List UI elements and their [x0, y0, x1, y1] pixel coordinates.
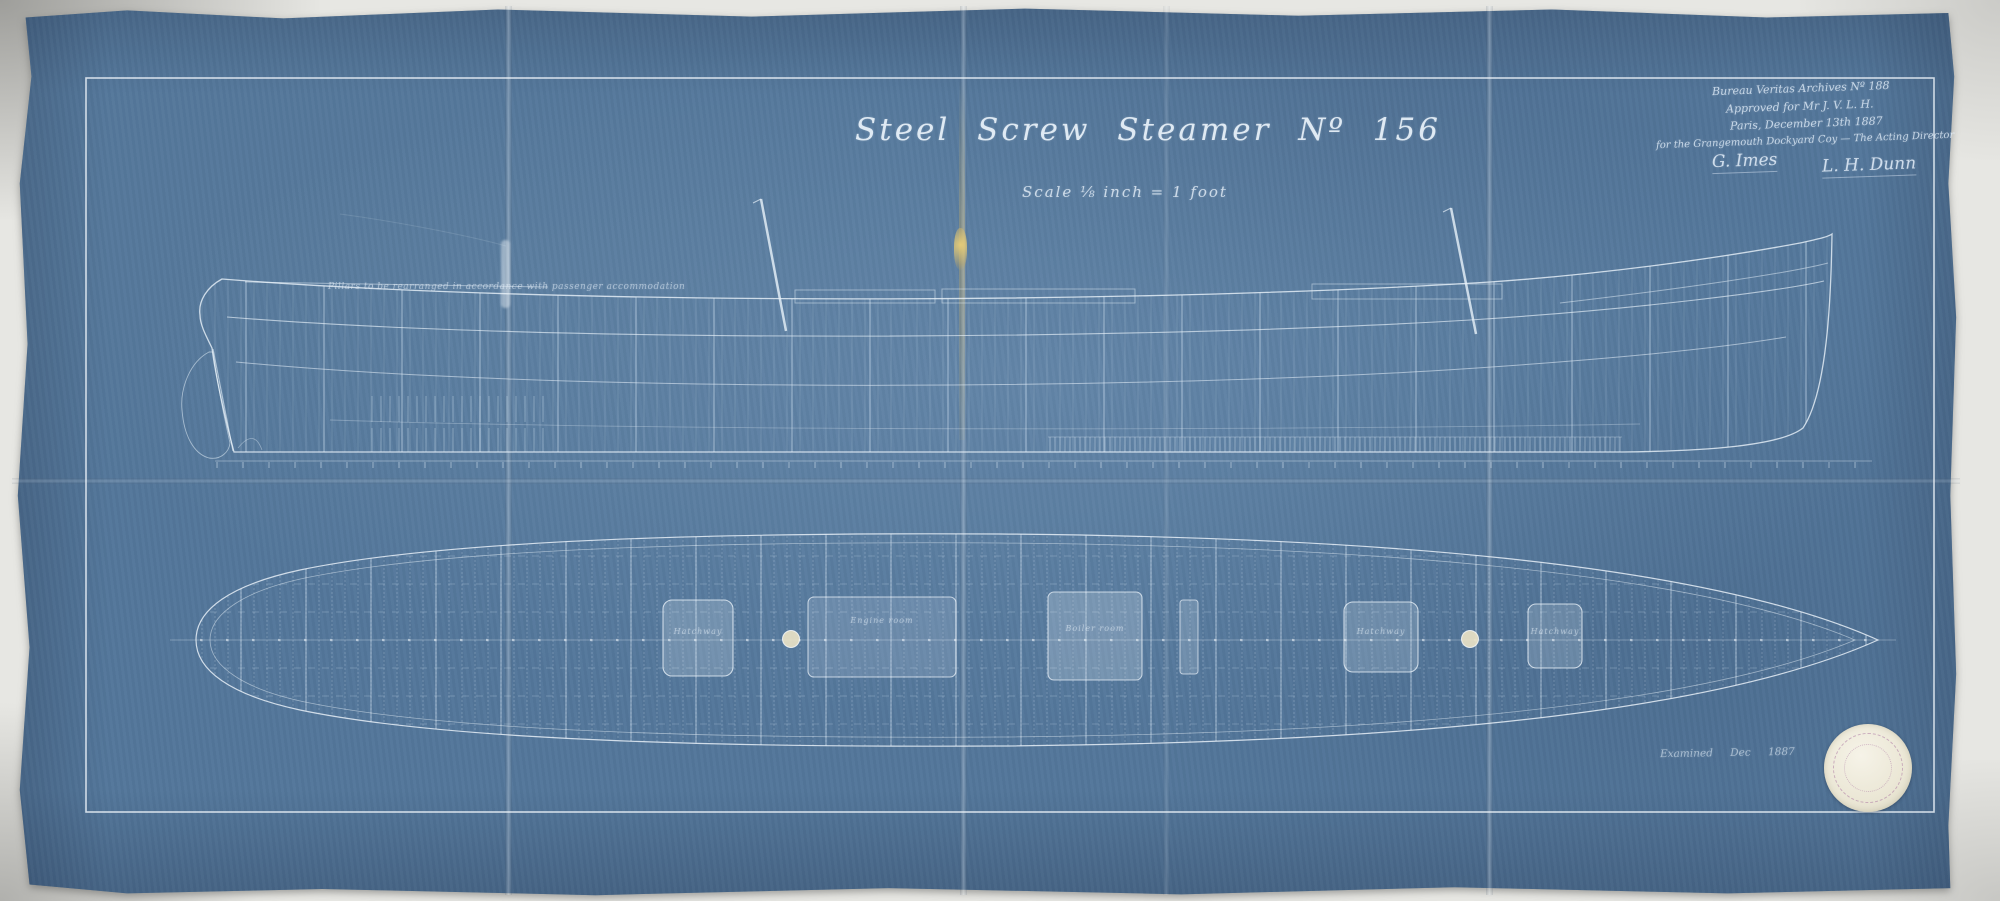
signature-2: L. H. Dunn	[1822, 153, 1917, 178]
elevation-view	[182, 199, 1872, 470]
boiler-room-label: Boiler room	[1045, 624, 1145, 633]
hull-annotation: Pillars to be rearranged in accordance w…	[328, 282, 685, 292]
boiler-casing-opening	[1048, 592, 1142, 680]
embossed-seal	[1824, 724, 1912, 812]
mainmast-hole	[1462, 631, 1479, 648]
ghost-line	[340, 214, 506, 246]
double-bottom-hatching	[1048, 437, 1622, 452]
drawing-title: Steel Screw Steamer Nº 156	[855, 112, 1345, 148]
hatch-label-5: Hatchway	[1510, 627, 1600, 636]
floor-hatching	[368, 428, 548, 452]
hatch-label-4: Hatchway	[1336, 627, 1426, 636]
hatch-opening-1	[663, 600, 733, 676]
floor-hatching	[368, 396, 548, 422]
foremast-hole	[783, 631, 800, 648]
station-ticks	[215, 461, 1872, 470]
plan-view	[170, 534, 1896, 746]
date-annotation: Examined Dec 1887	[1660, 746, 1795, 760]
engine-casing-opening	[808, 597, 956, 677]
tape-repair-blob	[954, 228, 967, 270]
hatch-opening-5	[1528, 604, 1582, 668]
scale-note: Scale ⅛ inch = 1 foot	[990, 183, 1260, 201]
blueprint-photo: Steel Screw Steamer Nº 156 Scale ⅛ inch …	[0, 0, 2000, 901]
bunker-hatch-opening	[1180, 600, 1198, 674]
paper-repair-mark	[501, 240, 510, 308]
hatch-opening-4	[1344, 602, 1418, 672]
hatch-label-1: Hatchway	[653, 627, 743, 636]
signature-1: G. Imes	[1712, 150, 1778, 174]
engine-room-label: Engine room	[832, 616, 932, 625]
